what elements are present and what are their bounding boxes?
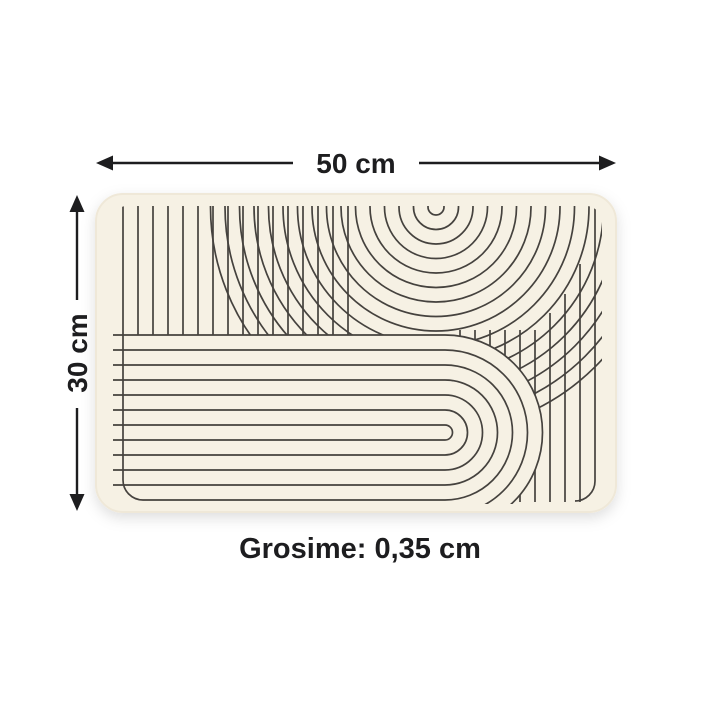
product-diagram: 50 cm 30 cm Grosime: 0,35 cm — [0, 0, 720, 720]
diagram-canvas: 50 cm 30 cm Grosime: 0,35 cm — [0, 0, 720, 720]
arrow-up-icon — [70, 195, 85, 212]
arrow-down-icon — [70, 494, 85, 511]
width-dimension-label: 50 cm — [316, 148, 395, 179]
thickness-label: Grosime: 0,35 cm — [239, 533, 481, 565]
arrow-left-icon — [96, 156, 113, 171]
height-dimension: 30 cm — [62, 195, 93, 511]
arrow-right-icon — [599, 156, 616, 171]
height-dimension-label: 30 cm — [62, 313, 93, 392]
width-dimension: 50 cm — [96, 148, 616, 179]
